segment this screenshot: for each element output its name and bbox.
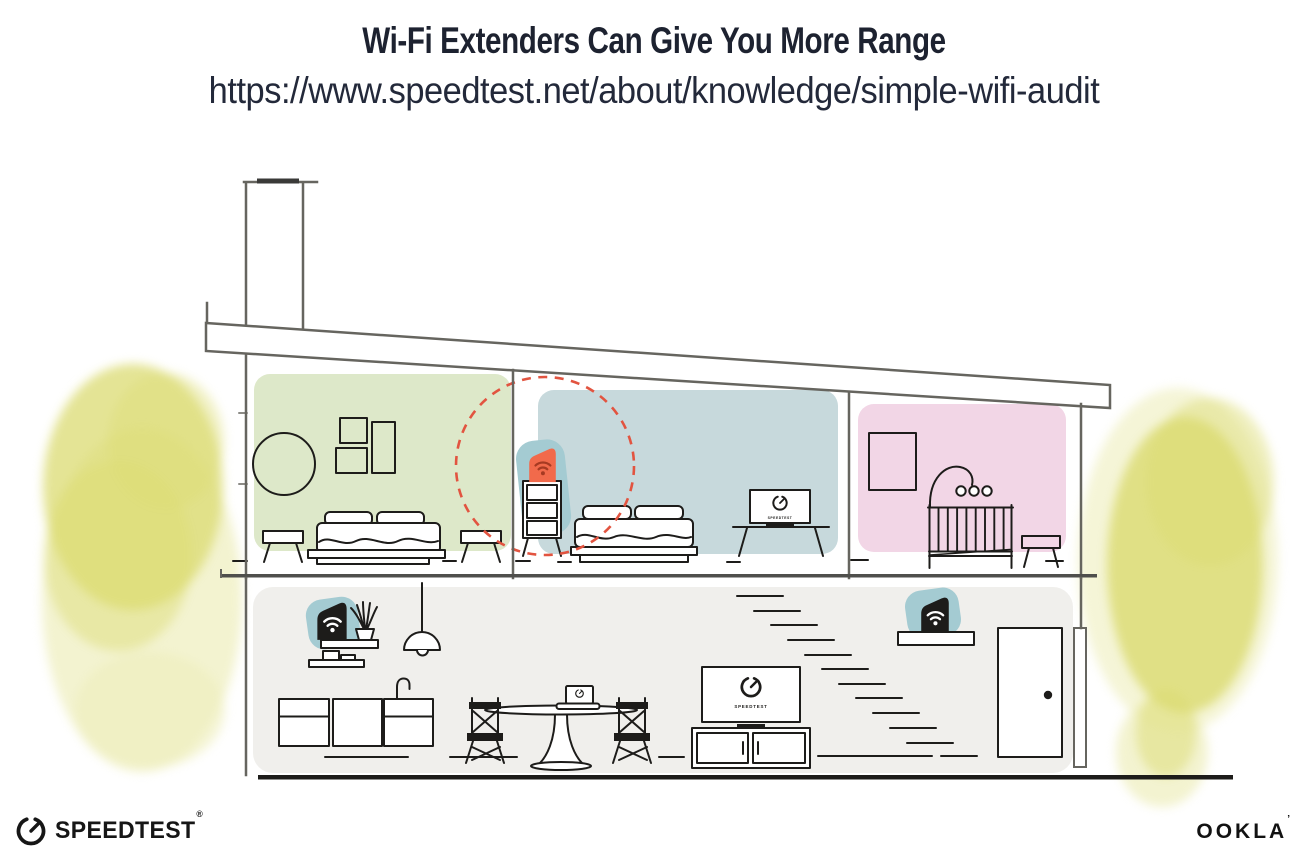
wall-section (1074, 628, 1086, 767)
foliage-left (42, 364, 242, 772)
mid-floor-slab (221, 574, 1097, 578)
plant-pot (356, 629, 374, 640)
trademark-tick: ’ (1287, 814, 1290, 825)
ookla-wordmark: OOKLA (1196, 820, 1287, 843)
foliage-right (1078, 388, 1278, 807)
bed (308, 512, 445, 564)
door-knob (1044, 691, 1052, 699)
tv-media-unit: SPEEDTEST (692, 667, 810, 768)
tv-screen (702, 667, 800, 722)
speedtest-logo: SPEEDTEST® (16, 816, 208, 846)
bowl (341, 655, 355, 660)
cup (323, 651, 339, 660)
ground-slab (258, 775, 1233, 780)
speedtest-wordmark: SPEEDTEST® (55, 817, 202, 845)
house-illustration: SPEEDTEST (0, 0, 1308, 861)
front-door (998, 628, 1062, 757)
nursery-background (858, 404, 1066, 552)
tv-screen-label: SPEEDTEST (768, 516, 793, 520)
stairs-shelf (898, 632, 974, 645)
tv-screen-label: SPEEDTEST (734, 704, 767, 709)
chimney (244, 179, 317, 331)
speedtest-gauge-icon (16, 816, 46, 846)
registered-mark: ® (196, 809, 203, 819)
ookla-logo: OOKLA’ (1196, 820, 1290, 844)
